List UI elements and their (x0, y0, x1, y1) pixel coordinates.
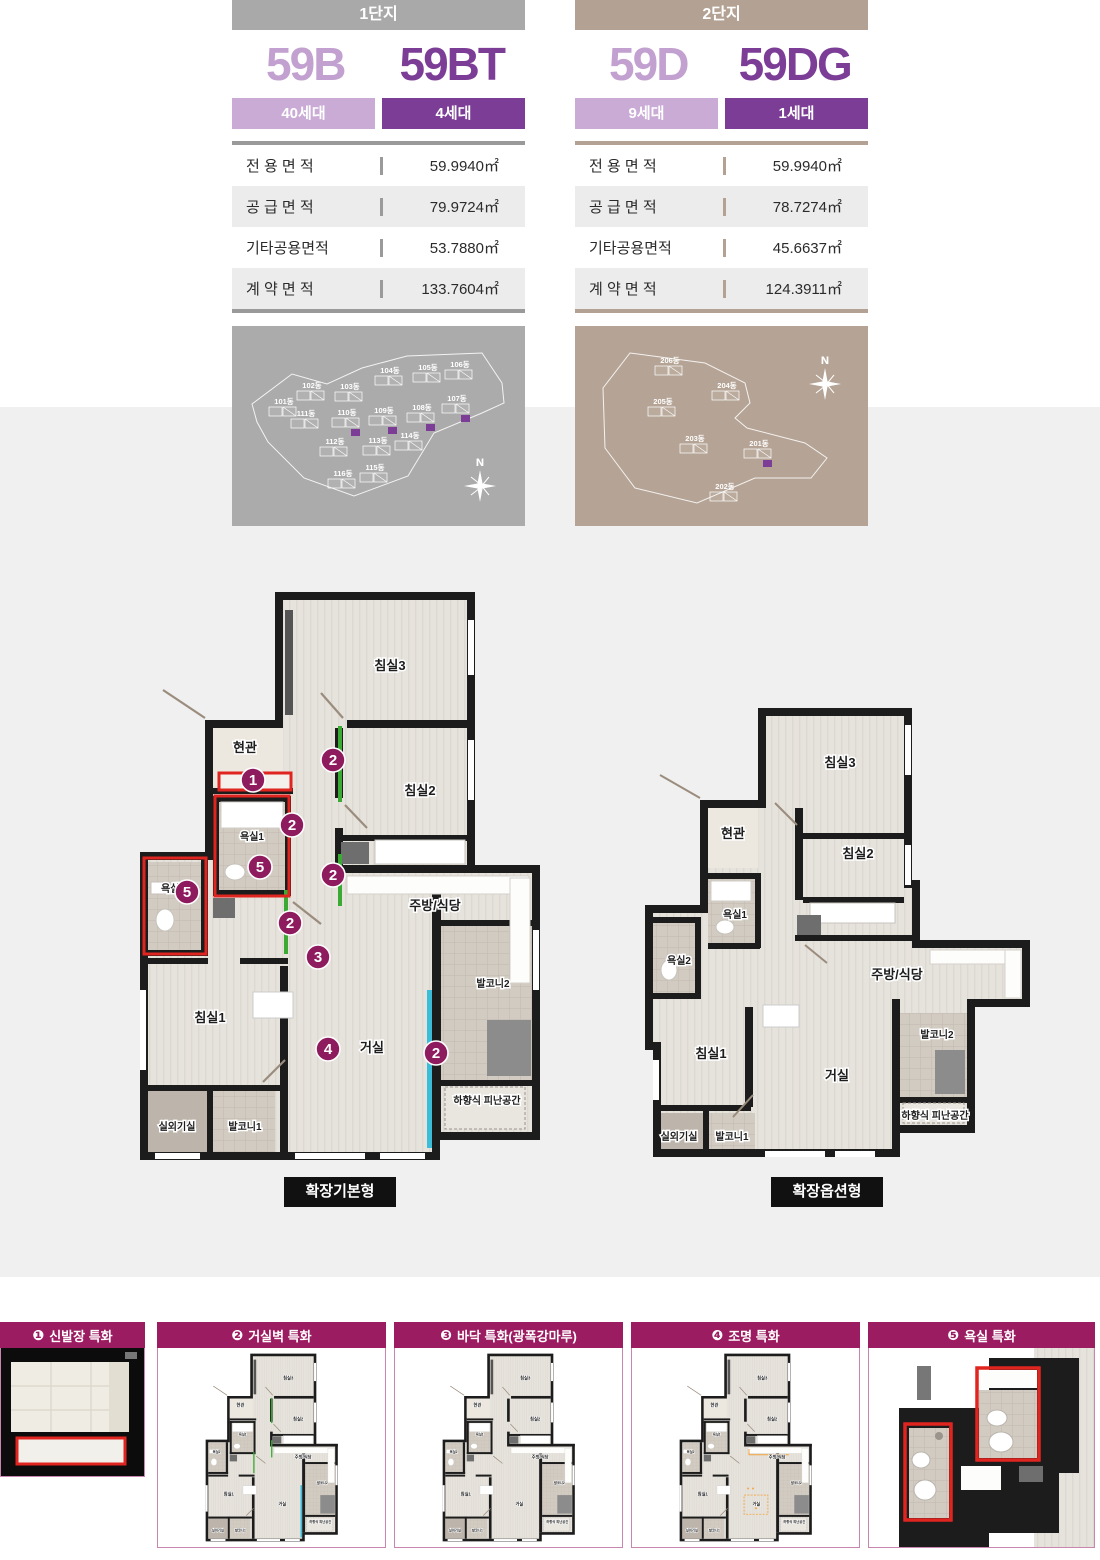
room-label: 침실1 (460, 1490, 471, 1497)
room-label: 주방/식당 (768, 1453, 785, 1460)
svg-text:5: 5 (183, 884, 191, 901)
area-value: 133.7604㎡ (383, 278, 525, 299)
type-code-row: 59D 59DG (575, 30, 868, 98)
building-label: 104동 (380, 366, 400, 375)
room-label: 침실1 (695, 1046, 726, 1061)
feature-card-lighting: ❹ 조명 특화 (631, 1322, 860, 1548)
feature-thumb: 침실3현관침실2욕실1욕실2주방/식당발코니2침실1거실하향식 피난공간실외기실… (158, 1348, 385, 1547)
room-label: 주방/식당 (531, 1453, 548, 1460)
feature-card-shoecloset: ❶ 신발장 특화 (0, 1322, 145, 1477)
type-code-59dg: 59DG (722, 37, 869, 91)
building-label: 105동 (418, 363, 438, 372)
room-label: 욕실1 (475, 1431, 483, 1436)
table-row: 전 용 면 적 59.9940㎡ (232, 145, 525, 186)
building-label: 110동 (338, 408, 357, 417)
room-label: 거실 (278, 1500, 286, 1507)
feature-number-icon: ❸ (440, 1327, 452, 1344)
room-label: 침실3 (283, 1374, 294, 1381)
room-label: 실외기실 (159, 1120, 196, 1133)
area-table: 전 용 면 적 59.9940㎡ 공 급 면 적 78.7274㎡ 기타공용면적… (575, 141, 868, 313)
room-label: 욕실2 (686, 1448, 694, 1453)
area-label: 기타공용면적 (232, 237, 380, 258)
room-label: 실외기실 (449, 1527, 461, 1532)
room-label: 욕실2 (667, 954, 691, 967)
room-label: 현관 (721, 826, 745, 841)
feature-title: 조명 특화 (728, 1326, 779, 1345)
room-label: 거실 (825, 1068, 849, 1083)
window-accent-cyan (300, 1485, 302, 1537)
room-label: 거실 (752, 1500, 760, 1507)
table-row: 기타공용면적 45.6637㎡ (575, 227, 868, 268)
room-label: 발코니2 (554, 1480, 565, 1485)
building-label: 115동 (366, 463, 385, 472)
building-label: 203동 (685, 434, 705, 443)
area-label: 공 급 면 적 (575, 196, 723, 217)
room-label: 침실2 (293, 1415, 304, 1422)
building-label: 107동 (447, 394, 467, 403)
feature-number-icon: ❷ (231, 1327, 243, 1344)
feature-header: ❹ 조명 특화 (631, 1322, 860, 1348)
window-accent-cyan (427, 990, 432, 1148)
feature-header: ❶ 신발장 특화 (0, 1322, 145, 1348)
building-label: 205동 (653, 397, 673, 406)
room-label: 주방/식당 (871, 967, 922, 982)
room-label: 발코니2 (476, 977, 510, 990)
miniplan-livingwall: 침실3현관침실2욕실1욕실2주방/식당발코니2침실1거실하향식 피난공간실외기실… (204, 1353, 339, 1543)
shoecloset-closeup (1, 1348, 144, 1476)
feature-card-livingwall: ❷ 거실벽 특화 (157, 1322, 386, 1548)
complex-card-1: 1단지 59B 59BT 40세대 4세대 전 용 면 적 59.9940㎡ 공… (232, 0, 525, 526)
feature-header: ❺ 욕실 특화 (868, 1322, 1095, 1348)
area-value: 53.7880㎡ (383, 237, 525, 258)
room-label: 발코니1 (472, 1527, 483, 1532)
bathroom-closeup (869, 1348, 1094, 1547)
room-label: 침실3 (757, 1374, 768, 1381)
room-label: 현관 (236, 1401, 244, 1408)
unit-count-badge: 1세대 (725, 98, 868, 129)
feature-title: 바닥 특화(광폭강마루) (457, 1326, 577, 1345)
variant-label-basic: 확장기본형 (284, 1177, 396, 1207)
sitemap-complex2: 206동204동205동203동201동202동 N (575, 326, 868, 526)
unit-count-badge: 9세대 (575, 98, 718, 129)
room-label: 현관 (233, 740, 257, 755)
area-value: 59.9940㎡ (383, 155, 525, 176)
room-label: 발코니1 (228, 1120, 262, 1133)
building-label: 102동 (302, 381, 322, 390)
area-value: 59.9940㎡ (726, 155, 868, 176)
building-label: 204동 (717, 381, 737, 390)
feature-thumb: 침실3현관침실2욕실1욕실2주방/식당발코니2침실1거실하향식 피난공간실외기실… (632, 1348, 859, 1547)
building-label: 114동 (401, 431, 420, 440)
feature-thumb (869, 1348, 1094, 1547)
room-label: 욕실1 (240, 830, 264, 843)
area-label: 계 약 면 적 (232, 278, 380, 299)
building-label: 113동 (369, 436, 388, 445)
table-row: 공 급 면 적 79.9724㎡ (232, 186, 525, 227)
area-table: 전 용 면 적 59.9940㎡ 공 급 면 적 79.9724㎡ 기타공용면적… (232, 141, 525, 313)
room-label: 하향식 피난공간 (783, 1518, 805, 1523)
room-label: 발코니2 (317, 1480, 328, 1485)
room-label: 침실1 (697, 1490, 708, 1497)
room-label: 욕실2 (212, 1448, 220, 1453)
building-label: 109동 (374, 406, 394, 415)
room-label: 욕실1 (723, 908, 747, 921)
type-code-59b: 59B (232, 37, 379, 91)
feature-number-icon: ❺ (947, 1327, 959, 1344)
room-label: 침실3 (520, 1374, 531, 1381)
area-label: 공 급 면 적 (232, 196, 380, 217)
area-value: 45.6637㎡ (726, 237, 868, 258)
brochure-page: N 1단지 59B 59BT 40세대 4세대 전 용 면 적 59.9940㎡… (0, 0, 1100, 1560)
sitemap-complex1: 101동102동103동104동105동106동107동108동109동110동… (232, 326, 525, 526)
floorplan-option: 침실3현관침실2욕실1욕실2주방/식당발코니2침실1거실하향식 피난공간실외기실… (645, 705, 1030, 1165)
room-label: 현관 (710, 1401, 718, 1408)
feature-number-icon: ❹ (711, 1327, 723, 1344)
type-code-59d: 59D (575, 37, 722, 91)
room-label: 침실2 (404, 783, 435, 798)
svg-text:4: 4 (324, 1041, 333, 1058)
area-label: 계 약 면 적 (575, 278, 723, 299)
building-label: 101동 (274, 397, 294, 406)
floorplan-option-svg: 침실3현관침실2욕실1욕실2주방/식당발코니2침실1거실하향식 피난공간실외기실… (645, 705, 1030, 1165)
compass-n: N (476, 457, 484, 469)
compass-n: N (821, 355, 829, 367)
room-label: 하향식 피난공간 (901, 1109, 969, 1122)
complex-name-bar: 2단지 (575, 0, 868, 30)
table-row: 계 약 면 적 124.3911㎡ (575, 268, 868, 309)
room-label: 거실 (515, 1500, 523, 1507)
room-label: 침실2 (530, 1415, 541, 1422)
table-row: 기타공용면적 53.7880㎡ (232, 227, 525, 268)
complex-name-bar: 1단지 (232, 0, 525, 30)
room-label: 발코니1 (235, 1527, 246, 1532)
type-code-59bt: 59BT (379, 37, 526, 91)
room-label: 현관 (473, 1401, 481, 1408)
building-label: 201동 (749, 439, 769, 448)
unit-count-row: 9세대 1세대 (575, 98, 868, 129)
svg-text:2: 2 (288, 817, 296, 834)
room-label: 실외기실 (686, 1527, 698, 1532)
room-label: 침실1 (223, 1490, 234, 1497)
feature-thumb: 침실3현관침실2욕실1욕실2주방/식당발코니2침실1거실하향식 피난공간실외기실… (395, 1348, 622, 1547)
unit-count-badge: 40세대 (232, 98, 375, 129)
room-label: 주방/식당 (409, 898, 460, 913)
room-label: 침실3 (824, 755, 855, 770)
svg-text:5: 5 (256, 859, 264, 876)
feature-number-icon: ❶ (32, 1327, 44, 1344)
area-value: 124.3911㎡ (726, 278, 868, 299)
miniplan-floor: 침실3현관침실2욕실1욕실2주방/식당발코니2침실1거실하향식 피난공간실외기실… (441, 1353, 576, 1543)
building-label: 108동 (412, 403, 432, 412)
room-label: 욕실1 (712, 1431, 720, 1436)
room-label: 발코니1 (709, 1527, 720, 1532)
room-label: 발코니1 (715, 1130, 749, 1143)
area-value: 79.9724㎡ (383, 196, 525, 217)
area-value: 78.7274㎡ (726, 196, 868, 217)
unit-count-badge: 4세대 (382, 98, 525, 129)
table-row: 전 용 면 적 59.9940㎡ (575, 145, 868, 186)
room-label: 하향식 피난공간 (546, 1518, 568, 1523)
type-code-row: 59B 59BT (232, 30, 525, 98)
floorplan-basic: 침실3현관침실2욕실1욕실2주방/식당발코니2침실1거실하향식 피난공간실외기실… (135, 590, 545, 1165)
table-row: 계 약 면 적 133.7604㎡ (232, 268, 525, 309)
building-label: 103동 (340, 382, 360, 391)
feature-title: 욕실 특화 (964, 1326, 1015, 1345)
room-label: 욕실1 (238, 1431, 246, 1436)
building-label: 206동 (660, 356, 680, 365)
svg-text:2: 2 (432, 1045, 440, 1062)
floorplan-basic-svg: 침실3현관침실2욕실1욕실2주방/식당발코니2침실1거실하향식 피난공간실외기실… (135, 590, 545, 1165)
building-label: 106동 (450, 360, 470, 369)
room-label: 침실1 (194, 1010, 225, 1025)
room-label: 하향식 피난공간 (309, 1518, 331, 1523)
room-label: 실외기실 (212, 1527, 224, 1532)
room-label: 침실3 (374, 658, 405, 673)
miniplan-lighting: 침실3현관침실2욕실1욕실2주방/식당발코니2침실1거실하향식 피난공간실외기실… (678, 1353, 813, 1543)
building-label: 112동 (326, 437, 345, 446)
room-label: 하향식 피난공간 (453, 1094, 521, 1107)
room-label: 거실 (360, 1040, 384, 1055)
variant-label-option: 확장옵션형 (771, 1177, 883, 1207)
feature-card-floor: ❸ 바닥 특화(광폭강마루) (394, 1322, 623, 1548)
building-label: 111동 (297, 409, 316, 418)
area-label: 기타공용면적 (575, 237, 723, 258)
building-label: 202동 (715, 482, 735, 491)
unit-count-row: 40세대 4세대 (232, 98, 525, 129)
room-label: 주방/식당 (294, 1453, 311, 1460)
feature-header: ❷ 거실벽 특화 (157, 1322, 386, 1348)
feature-title: 신발장 특화 (49, 1326, 112, 1345)
svg-text:3: 3 (314, 949, 322, 966)
area-label: 전 용 면 적 (575, 155, 723, 176)
feature-header: ❸ 바닥 특화(광폭강마루) (394, 1322, 623, 1348)
svg-text:2: 2 (329, 752, 337, 769)
room-label: 침실2 (767, 1415, 778, 1422)
svg-text:2: 2 (286, 915, 294, 932)
room-label: 발코니2 (791, 1480, 802, 1485)
svg-text:2: 2 (329, 867, 337, 884)
svg-text:1: 1 (249, 772, 257, 789)
feature-thumb (1, 1348, 144, 1476)
table-row: 공 급 면 적 78.7274㎡ (575, 186, 868, 227)
room-label: 욕실2 (449, 1448, 457, 1453)
room-label: 침실2 (842, 846, 873, 861)
area-label: 전 용 면 적 (232, 155, 380, 176)
room-label: 발코니2 (920, 1028, 954, 1041)
room-label: 실외기실 (661, 1130, 698, 1143)
feature-title: 거실벽 특화 (248, 1326, 311, 1345)
complex-card-2: 2단지 59D 59DG 9세대 1세대 전 용 면 적 59.9940㎡ 공 … (575, 0, 868, 526)
feature-card-bathroom: ❺ 욕실 특화 (868, 1322, 1095, 1548)
building-label: 116동 (334, 469, 353, 478)
